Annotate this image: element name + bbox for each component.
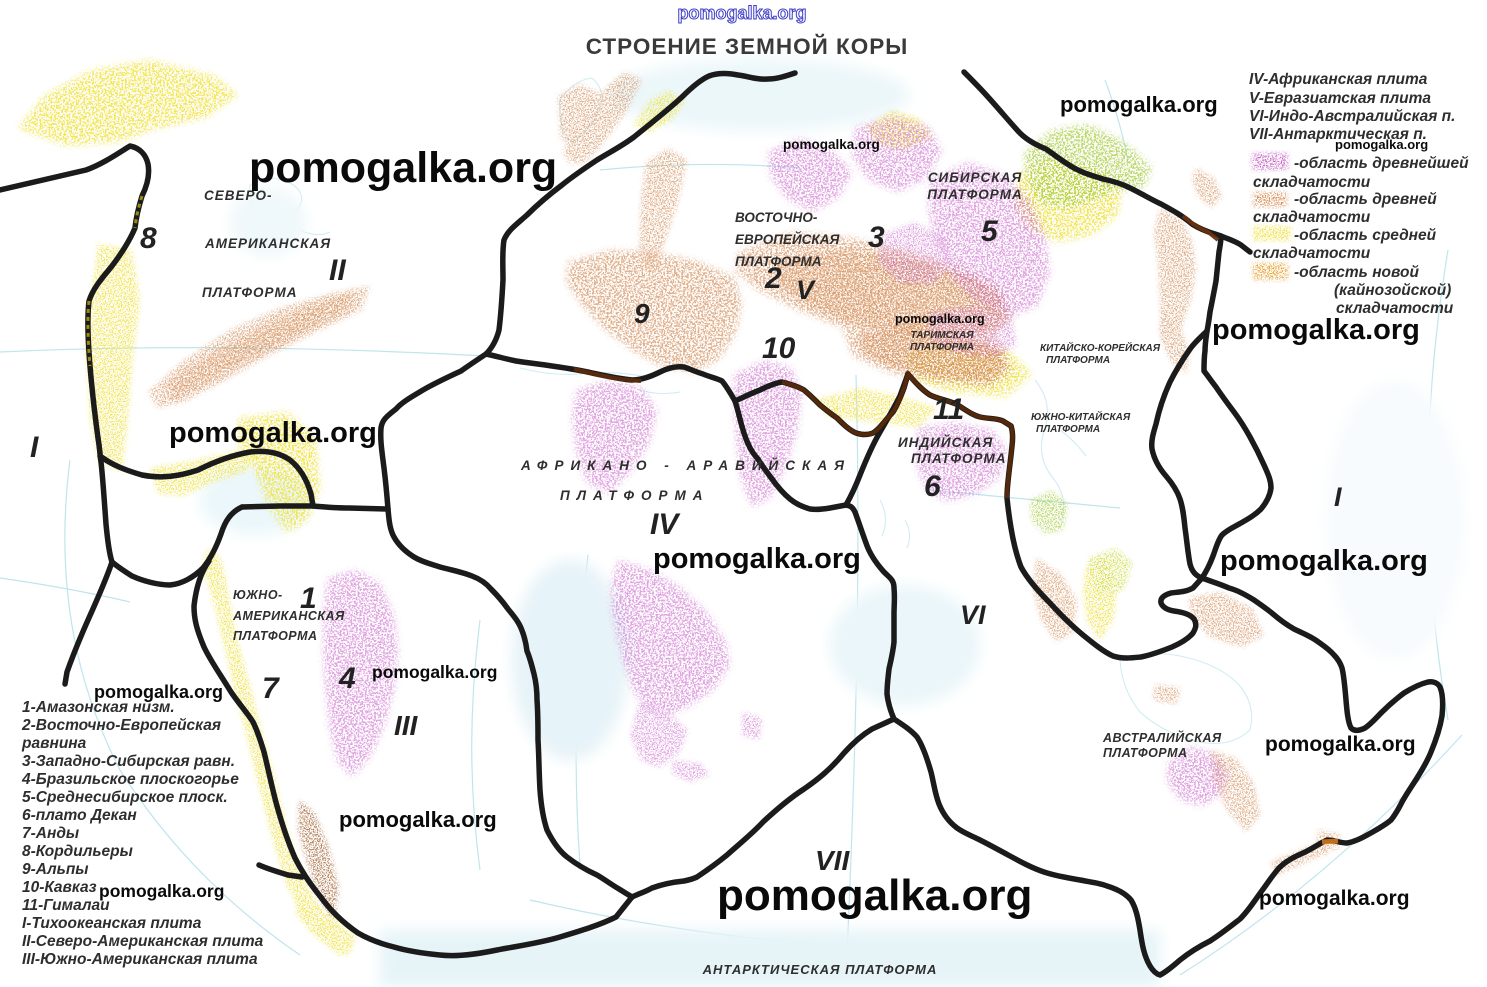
svg-text:(кайнозойской): (кайнозойской) [1334, 282, 1451, 299]
svg-text:СИБИРСКАЯ: СИБИРСКАЯ [928, 170, 1023, 185]
svg-text:7-Анды: 7-Анды [22, 825, 79, 842]
svg-text:pomogalka.org: pomogalka.org [1060, 92, 1218, 117]
svg-text:pomogalka.org: pomogalka.org [169, 417, 377, 449]
svg-text:8-Кордильеры: 8-Кордильеры [22, 843, 133, 860]
svg-text:pomogalka.org: pomogalka.org [717, 871, 1032, 920]
svg-text:ПЛАТФОРМА: ПЛАТФОРМА [233, 629, 318, 643]
svg-text:I: I [1334, 482, 1342, 512]
svg-text:III: III [394, 710, 419, 741]
svg-text:2: 2 [764, 262, 782, 295]
svg-text:равнина: равнина [21, 735, 87, 752]
svg-text:-область новой: -область новой [1294, 264, 1419, 281]
svg-text:pomogalka.org: pomogalka.org [1212, 314, 1420, 346]
svg-text:II: II [329, 254, 346, 287]
svg-text:pomogalka.org: pomogalka.org [895, 312, 985, 326]
svg-text:ЮЖНО-КИТАЙСКАЯ: ЮЖНО-КИТАЙСКАЯ [1031, 410, 1131, 423]
svg-text:VI: VI [960, 600, 986, 630]
svg-text:6-плато Декан: 6-плато Декан [22, 807, 137, 824]
svg-text:-область древнейшей: -область древнейшей [1294, 155, 1469, 172]
svg-text:ПЛАТФОРМА: ПЛАТФОРМА [910, 342, 974, 353]
svg-text:pomogalka.org: pomogalka.org [99, 881, 224, 901]
svg-text:складчатости: складчатости [1253, 245, 1371, 262]
svg-text:pomogalka.org: pomogalka.org [249, 144, 557, 192]
svg-text:ИНДИЙСКАЯ: ИНДИЙСКАЯ [898, 434, 993, 450]
svg-text:10-Кавказ: 10-Кавказ [22, 879, 97, 896]
svg-text:-область древней: -область древней [1294, 191, 1437, 208]
svg-text:АВСТРАЛИЙСКАЯ: АВСТРАЛИЙСКАЯ [1102, 729, 1222, 745]
svg-text:IV: IV [650, 508, 681, 541]
svg-text:pomogalka.org: pomogalka.org [1220, 545, 1428, 577]
svg-text:4: 4 [338, 662, 356, 695]
svg-text:АФРИКАНО - АРАВИЙСКАЯ: АФРИКАНО - АРАВИЙСКАЯ [520, 457, 851, 473]
svg-text:7: 7 [262, 672, 280, 705]
svg-text:-область средней: -область средней [1294, 227, 1437, 244]
svg-text:ВОСТОЧНО-: ВОСТОЧНО- [735, 210, 818, 225]
svg-text:VI-Индо-Австралийская п.: VI-Индо-Австралийская п. [1249, 108, 1455, 125]
svg-text:3-Западно-Сибирская равн.: 3-Западно-Сибирская равн. [22, 753, 235, 770]
svg-text:V-Евразиатская плита: V-Евразиатская плита [1249, 90, 1431, 107]
svg-text:АНТАРКТИЧЕСКАЯ ПЛАТФОРМА: АНТАРКТИЧЕСКАЯ ПЛАТФОРМА [702, 962, 938, 977]
svg-text:ТАРИМСКАЯ: ТАРИМСКАЯ [910, 330, 974, 341]
svg-text:ПЛАТФОРМА: ПЛАТФОРМА [927, 187, 1022, 202]
svg-text:ЮЖНО-: ЮЖНО- [233, 588, 283, 602]
svg-text:ПЛАТФОРМА: ПЛАТФОРМА [560, 488, 709, 503]
svg-text:ПЛАТФОРМА: ПЛАТФОРМА [1036, 424, 1100, 435]
svg-text:6: 6 [924, 470, 941, 503]
svg-text:АМЕРИКАНСКАЯ: АМЕРИКАНСКАЯ [204, 236, 331, 251]
svg-text:pomogalka.org: pomogalka.org [372, 662, 497, 682]
svg-text:8: 8 [140, 222, 157, 255]
svg-text:9-Альпы: 9-Альпы [22, 861, 89, 878]
svg-text:10: 10 [762, 332, 796, 365]
svg-text:pomogalka.org: pomogalka.org [1335, 137, 1428, 152]
svg-text:pomogalka.org: pomogalka.org [339, 807, 497, 832]
svg-text:4-Бразильское плоскогорье: 4-Бразильское плоскогорье [21, 771, 239, 788]
svg-text:9: 9 [634, 298, 650, 329]
svg-text:складчатости: складчатости [1253, 209, 1371, 226]
svg-text:11: 11 [933, 393, 964, 426]
svg-text:III-Южно-Американская плита: III-Южно-Американская плита [22, 951, 258, 968]
svg-text:IV-Африканская плита: IV-Африканская плита [1249, 71, 1428, 88]
svg-text:pomogalka.org: pomogalka.org [1265, 733, 1416, 756]
svg-text:3: 3 [868, 221, 885, 254]
svg-text:2-Восточно-Европейская: 2-Восточно-Европейская [21, 717, 221, 734]
svg-text:pomogalka.org: pomogalka.org [653, 543, 861, 575]
svg-text:I-Тихоокеанская плита: I-Тихоокеанская плита [22, 915, 202, 932]
svg-text:ПЛАТФОРМА: ПЛАТФОРМА [1046, 355, 1110, 366]
svg-text:5-Среднесибирское плоск.: 5-Среднесибирское плоск. [22, 789, 228, 806]
svg-text:АМЕРИКАНСКАЯ: АМЕРИКАНСКАЯ [232, 609, 345, 623]
svg-text:I: I [30, 431, 39, 464]
svg-text:СТРОЕНИЕ ЗЕМНОЙ КОРЫ: СТРОЕНИЕ ЗЕМНОЙ КОРЫ [586, 34, 909, 59]
svg-text:складчатости: складчатости [1253, 174, 1371, 191]
svg-text:5: 5 [981, 215, 999, 248]
svg-text:1: 1 [300, 582, 317, 615]
svg-text:pomogalka.org: pomogalka.org [783, 137, 880, 152]
svg-text:КИТАЙСКО-КОРЕЙСКАЯ: КИТАЙСКО-КОРЕЙСКАЯ [1040, 341, 1161, 354]
svg-text:V: V [796, 275, 816, 305]
svg-text:ПЛАТФОРМА: ПЛАТФОРМА [202, 285, 297, 300]
svg-text:ЕВРОПЕЙСКАЯ: ЕВРОПЕЙСКАЯ [735, 231, 840, 247]
svg-text:pomogalka.org: pomogalka.org [94, 682, 223, 702]
svg-text:II-Северо-Американская плита: II-Северо-Американская плита [22, 933, 264, 950]
svg-text:ПЛАТФОРМА: ПЛАТФОРМА [911, 451, 1006, 466]
svg-text:pomogalka.org: pomogalka.org [1259, 887, 1410, 910]
svg-text:pomogalka.org: pomogalka.org [677, 3, 806, 23]
svg-text:11-Гималаи: 11-Гималаи [22, 897, 110, 914]
svg-text:ПЛАТФОРМА: ПЛАТФОРМА [1103, 746, 1188, 760]
